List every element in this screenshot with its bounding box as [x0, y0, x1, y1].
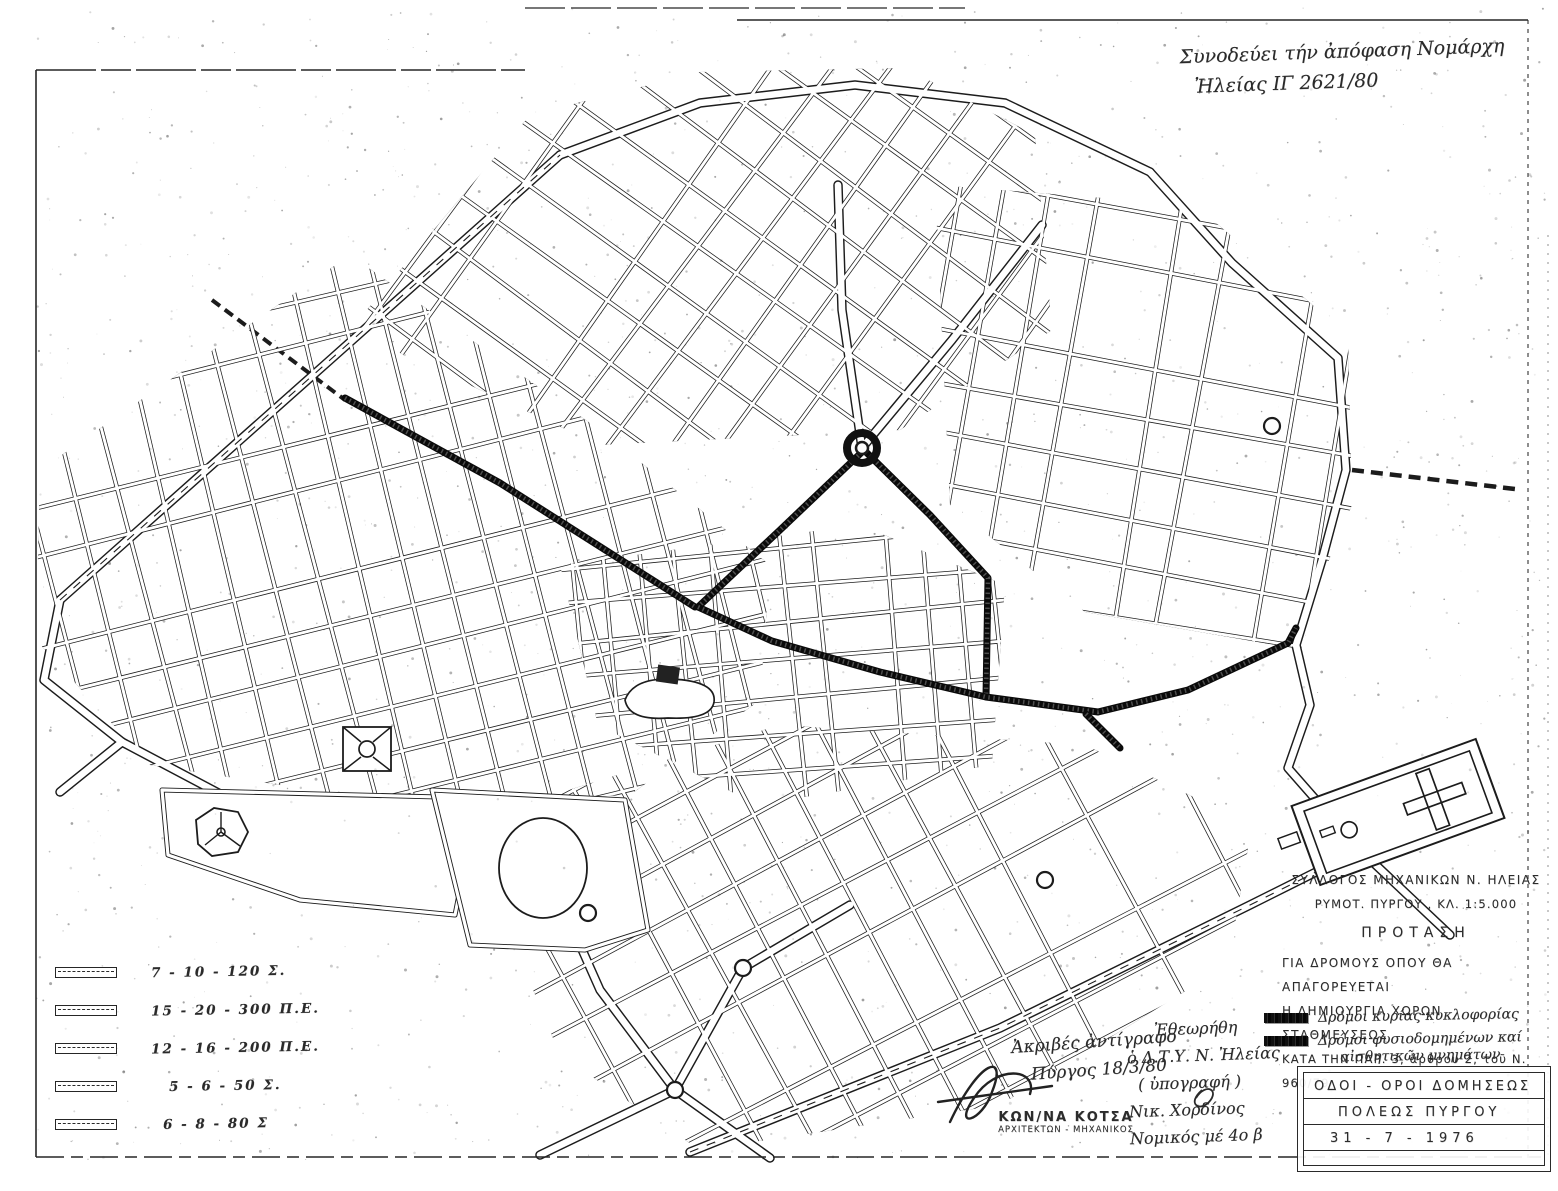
width-legend-label: 5 - 6 - 50 Σ.: [169, 1077, 282, 1095]
title-block-spacer: [1304, 1151, 1544, 1165]
proposal-line1: ΓΙΑ ΔΡΟΜΟΥΣ ΟΠΟΥ ΘΑ ΑΠΑΓΟΡΕΥΕΤΑΙ: [1282, 951, 1550, 999]
road-section-symbol: [55, 1119, 117, 1130]
width-legend-row: 7 - 10 - 120 Σ.: [55, 958, 320, 986]
width-legend-row: 12 - 16 - 200 Π.Ε.: [55, 1034, 320, 1062]
proposal-title: ΠΡΟΤΑΣΗ: [1282, 921, 1550, 945]
width-legend-label: 15 - 20 - 300 Π.Ε.: [151, 1001, 320, 1020]
road-section-symbol: [55, 1005, 117, 1016]
monument-roads-label-line2: αἰσθητικῶν μνημάτων: [1318, 1046, 1522, 1067]
main-roads-label: Δρόμοι κυρίας κυκλοφορίας: [1318, 1006, 1519, 1027]
width-legend-label: 6 - 8 - 80 Σ: [163, 1115, 269, 1133]
approval-note: Συνοδεύει τήν ἀπόφαση Νομάρχη Ἠλείας ΙΓ …: [1179, 30, 1541, 103]
drawing-title: ΟΔΟΙ - ΟΡΟΙ ΔΟΜΗΣΕΩΣ: [1304, 1073, 1544, 1099]
title-block: ΟΔΟΙ - ΟΡΟΙ ΔΟΜΗΣΕΩΣ ΠΟΛΕΩΣ ΠΥΡΓΟΥ 31 - …: [1297, 1066, 1551, 1172]
drawing-subtitle: ΠΟΛΕΩΣ ΠΥΡΓΟΥ: [1304, 1099, 1544, 1125]
road-section-symbol: [55, 1043, 117, 1054]
association-name: ΣΥΛΛΟΓΟΣ ΜΗΧΑΝΙΚΩΝ Ν. ΗΛΕΙΑΣ: [1282, 868, 1550, 892]
monument-roads-label: Δρόμοι φυσιοδομημένων καί αἰσθητικῶν μνη…: [1318, 1029, 1523, 1067]
road-section-symbol: [55, 1081, 117, 1092]
title-block-inner-frame: ΟΔΟΙ - ΟΡΟΙ ΔΟΜΗΣΕΩΣ ΠΟΛΕΩΣ ΠΥΡΓΟΥ 31 - …: [1303, 1072, 1545, 1166]
width-legend-label: 12 - 16 - 200 Π.Ε.: [151, 1039, 320, 1058]
width-legend-label: 7 - 10 - 120 Σ.: [151, 963, 287, 981]
map-sheet: Συνοδεύει τήν ἀπόφαση Νομάρχη Ἠλείας ΙΓ …: [0, 0, 1558, 1191]
review-note: Ἐθεωρήθη ὁ Δ.Τ.Υ. Ν. Ἠλείας ( ὑπογραφή )…: [1126, 1011, 1321, 1153]
drawing-date: 31 - 7 - 1976: [1304, 1125, 1544, 1151]
plan-scale: ΡΥΜΟΤ. ΠΥΡΓΟΥ , ΚΛ. 1:5.000: [1282, 892, 1550, 916]
width-legend-row: 6 - 8 - 80 Σ: [55, 1110, 320, 1138]
architect-title: ΑΡΧΙΤΕΚΤΩΝ - ΜΗΧΑΝΙΚΟΣ: [986, 1125, 1146, 1135]
width-legend-row: 5 - 6 - 50 Σ.: [55, 1072, 320, 1100]
central-park: [625, 679, 714, 718]
width-legend-row: 15 - 20 - 300 Π.Ε.: [55, 996, 320, 1024]
architect-stamp: ΚΩΝ/ΝΑ ΚΟΤΣΑ ΑΡΧΙΤΕΚΤΩΝ - ΜΗΧΑΝΙΚΟΣ: [986, 1110, 1146, 1135]
architect-name: ΚΩΝ/ΝΑ ΚΟΤΣΑ: [986, 1110, 1146, 1125]
road-section-symbol: [55, 967, 117, 978]
road-width-legend: 7 - 10 - 120 Σ. 15 - 20 - 300 Π.Ε. 12 - …: [55, 958, 320, 1148]
